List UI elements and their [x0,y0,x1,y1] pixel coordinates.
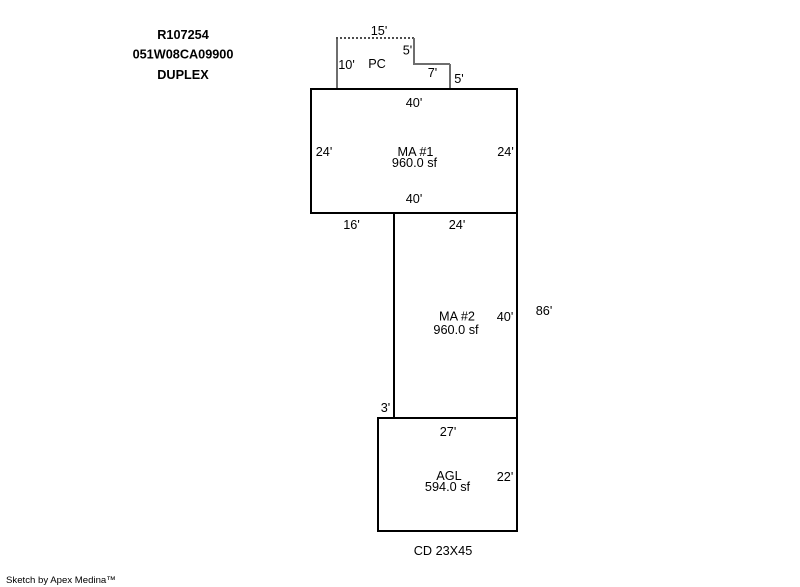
svg-text:16': 16' [343,218,360,232]
svg-text:22': 22' [497,470,514,484]
svg-text:40': 40' [406,192,423,206]
svg-text:15': 15' [371,24,388,38]
svg-text:24': 24' [316,145,333,159]
svg-text:960.0 sf: 960.0 sf [392,156,438,170]
svg-text:3': 3' [381,401,390,415]
svg-text:24': 24' [497,145,514,159]
svg-text:40': 40' [406,96,423,110]
svg-text:24': 24' [449,218,466,232]
svg-text:CD 23X45: CD 23X45 [414,544,473,558]
svg-text:86': 86' [536,304,553,318]
svg-text:5': 5' [403,44,412,58]
svg-text:R107254: R107254 [157,28,209,42]
svg-text:594.0 sf: 594.0 sf [425,480,471,494]
svg-text:MA #2: MA #2 [439,310,475,324]
svg-text:Sketch by Apex Medina™: Sketch by Apex Medina™ [6,575,116,586]
svg-text:10': 10' [338,58,355,72]
svg-text:DUPLEX: DUPLEX [157,68,209,82]
svg-text:PC: PC [368,57,386,71]
svg-text:7': 7' [428,66,437,80]
svg-text:5': 5' [454,72,463,86]
svg-text:40': 40' [497,310,514,324]
svg-text:960.0 sf: 960.0 sf [433,323,479,337]
svg-text:051W08CA09900: 051W08CA09900 [133,48,234,62]
svg-text:27': 27' [440,425,457,439]
